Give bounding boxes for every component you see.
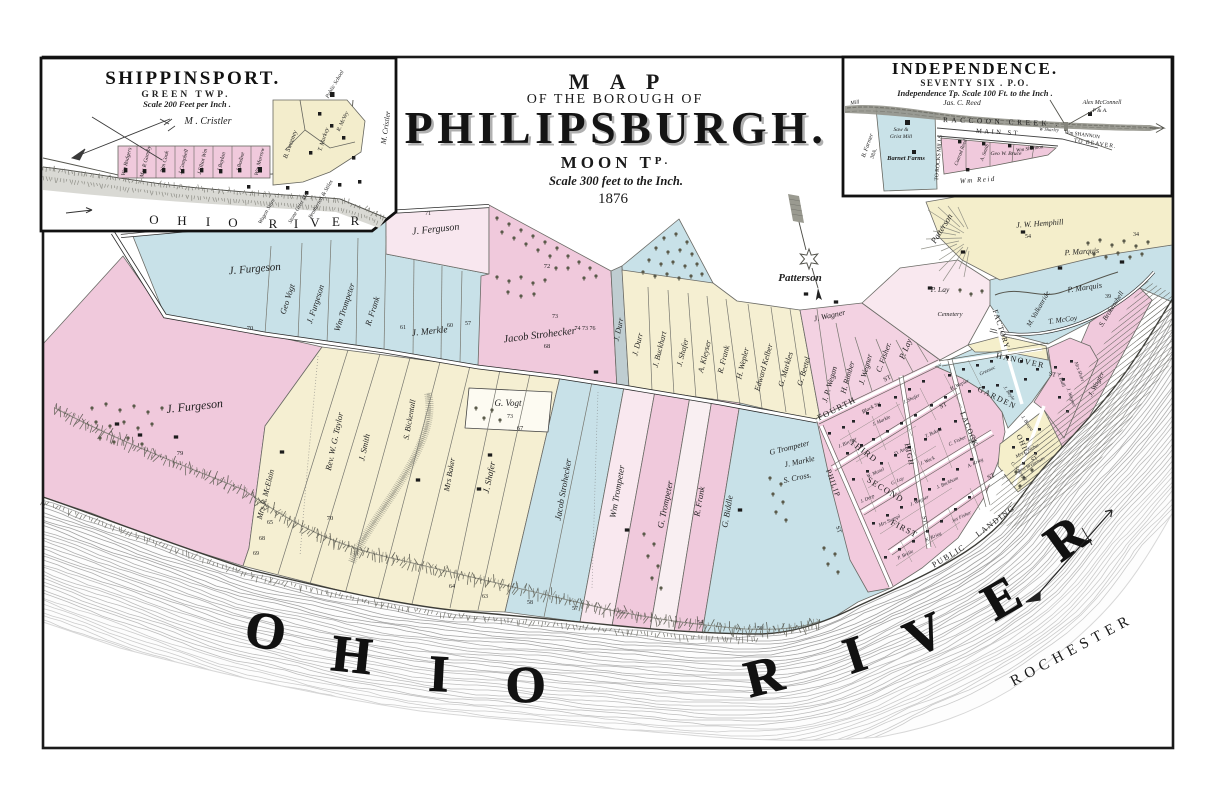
svg-text:73: 73 xyxy=(552,314,558,320)
svg-text:SEVENTY SIX . P.O.: SEVENTY SIX . P.O. xyxy=(920,78,1029,88)
svg-text:M . Cristler: M . Cristler xyxy=(184,116,232,127)
svg-text:E: E xyxy=(332,214,340,229)
svg-text:MOON TP.: MOON TP. xyxy=(561,153,672,172)
svg-text:68: 68 xyxy=(259,536,265,542)
svg-text:Patterson: Patterson xyxy=(778,272,821,284)
svg-text:Barnet Farms: Barnet Farms xyxy=(886,155,925,162)
svg-text:I: I xyxy=(206,214,210,229)
svg-text:61: 61 xyxy=(400,325,406,331)
svg-text:I: I xyxy=(294,216,298,231)
svg-text:P. Lay: P. Lay xyxy=(930,285,950,294)
svg-text:V: V xyxy=(310,215,320,230)
svg-text:O: O xyxy=(228,215,237,230)
svg-text:Independence Tp. Scale 100 F: Independence Tp. Scale 100 Ft. to the In… xyxy=(896,88,1053,98)
svg-text:39: 39 xyxy=(1105,294,1111,300)
svg-text:R: R xyxy=(351,213,360,228)
svg-text:Scale 300 feet to the Inch.: Scale 300 feet to the Inch. xyxy=(549,174,683,188)
svg-text:64: 64 xyxy=(449,584,455,590)
svg-text:Alex McConnell: Alex McConnell xyxy=(1082,100,1122,106)
svg-text:34: 34 xyxy=(1133,232,1139,238)
svg-text:H: H xyxy=(177,213,186,228)
svg-text:60: 60 xyxy=(447,323,453,329)
svg-text:Jas. C. Reed: Jas. C. Reed xyxy=(943,98,981,107)
svg-text:1876: 1876 xyxy=(598,191,629,207)
svg-text:PHILIPSBURGH.: PHILIPSBURGH. xyxy=(405,102,828,153)
svg-text:70: 70 xyxy=(327,515,334,522)
svg-text:68: 68 xyxy=(544,343,551,350)
svg-text:Saw &: Saw & xyxy=(893,127,909,133)
svg-text:M A P: M A P xyxy=(569,69,668,94)
svg-text:54: 54 xyxy=(1025,234,1031,240)
svg-text:P & A.: P & A. xyxy=(1092,108,1108,114)
svg-text:74 73 76: 74 73 76 xyxy=(575,326,596,332)
svg-text:H: H xyxy=(329,625,375,686)
svg-text:O: O xyxy=(149,212,158,227)
svg-text:73: 73 xyxy=(507,414,513,420)
svg-text:67: 67 xyxy=(517,425,524,432)
svg-text:72: 72 xyxy=(544,263,551,270)
svg-text:58: 58 xyxy=(527,600,533,606)
svg-text:63: 63 xyxy=(482,594,488,600)
svg-text:Grist Mill: Grist Mill xyxy=(890,134,913,140)
svg-text:79: 79 xyxy=(177,450,184,457)
svg-text:65: 65 xyxy=(267,520,273,526)
svg-text:71: 71 xyxy=(425,211,431,217)
svg-text:57: 57 xyxy=(465,321,471,327)
svg-text:Cemetery: Cemetery xyxy=(938,311,963,318)
svg-text:69: 69 xyxy=(253,551,259,557)
svg-text:O: O xyxy=(505,657,546,715)
svg-text:Scale 200 Feet per Inch .: Scale 200 Feet per Inch . xyxy=(143,99,231,109)
svg-text:I: I xyxy=(427,646,450,704)
svg-text:70: 70 xyxy=(247,325,254,332)
svg-text:SHIPPINSPORT.: SHIPPINSPORT. xyxy=(105,68,281,89)
svg-text:R: R xyxy=(269,216,278,231)
svg-text:G. Vogt: G. Vogt xyxy=(495,398,522,408)
svg-text:INDEPENDENCE.: INDEPENDENCE. xyxy=(892,59,1058,78)
